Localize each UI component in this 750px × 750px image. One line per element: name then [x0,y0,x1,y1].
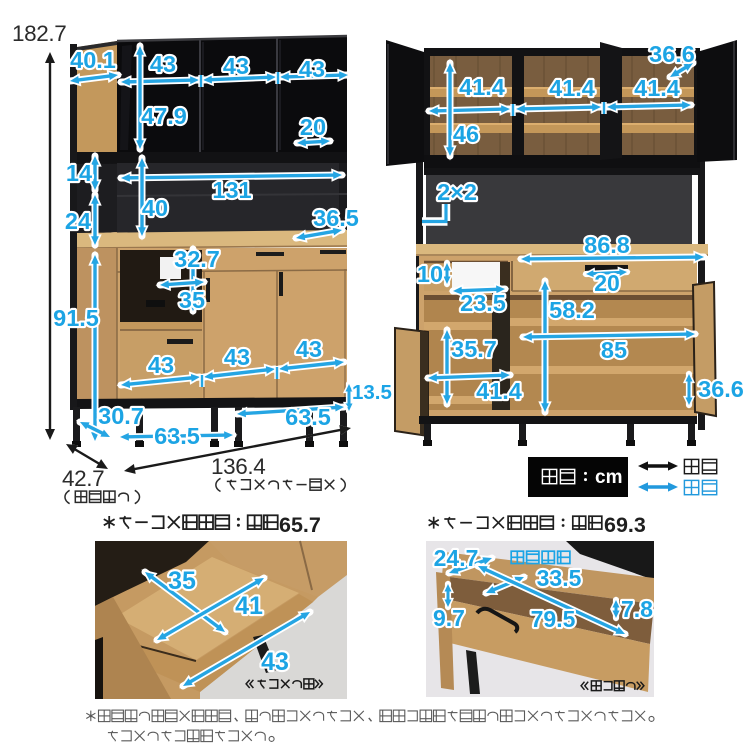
svg-text:9.7: 9.7 [433,605,465,631]
svg-text:10: 10 [417,261,443,287]
svg-text:43: 43 [148,352,174,378]
svg-text:42.7: 42.7 [62,466,104,491]
svg-text:41.4: 41.4 [634,75,680,101]
svg-text:131: 131 [212,177,251,203]
svg-text:63.5: 63.5 [154,423,200,449]
svg-text:41.4: 41.4 [549,75,595,101]
svg-text:13.5: 13.5 [352,381,392,404]
svg-text:47.9: 47.9 [141,103,187,129]
svg-text:41.4: 41.4 [476,378,522,404]
svg-text:35: 35 [168,567,196,595]
svg-text:40: 40 [142,195,168,221]
svg-text:85: 85 [601,337,627,363]
svg-text:136.4: 136.4 [211,454,265,479]
svg-text:7.8: 7.8 [621,596,653,622]
svg-text:36.6: 36.6 [649,41,695,67]
svg-text:23.5: 23.5 [460,290,506,316]
svg-text:43: 43 [299,56,325,82]
svg-text:2×2: 2×2 [437,179,477,205]
svg-text:cm: cm [595,467,622,488]
svg-text:46: 46 [453,121,479,147]
svg-text:91.5: 91.5 [53,305,99,331]
svg-text:43: 43 [261,648,289,676]
svg-text:65.7: 65.7 [279,513,321,537]
svg-text:36.6: 36.6 [698,376,744,402]
svg-text:20: 20 [300,114,326,140]
svg-text:35: 35 [179,287,205,313]
svg-text:40.1: 40.1 [70,47,116,73]
svg-text:43: 43 [296,336,322,362]
svg-text:32.7: 32.7 [174,246,220,272]
svg-text:36.5: 36.5 [313,205,359,231]
svg-text:14: 14 [66,160,92,186]
svg-text:24: 24 [65,208,91,234]
svg-text:69.3: 69.3 [604,513,646,537]
svg-text:43: 43 [223,53,249,79]
svg-text:86.8: 86.8 [584,232,630,258]
svg-text:43: 43 [150,51,176,77]
svg-text:33.5: 33.5 [537,565,582,591]
svg-text:41.4: 41.4 [459,74,505,100]
svg-text:41: 41 [235,592,263,620]
svg-text:58.2: 58.2 [549,297,595,323]
svg-text:43: 43 [224,344,250,370]
svg-text:182.7: 182.7 [12,21,66,46]
svg-text:79.5: 79.5 [531,606,576,632]
svg-text:24.7: 24.7 [434,545,479,571]
svg-text:35.7: 35.7 [451,336,497,362]
svg-text:63.5: 63.5 [285,404,331,430]
svg-text:30.7: 30.7 [98,403,144,429]
svg-text:20: 20 [594,270,620,296]
